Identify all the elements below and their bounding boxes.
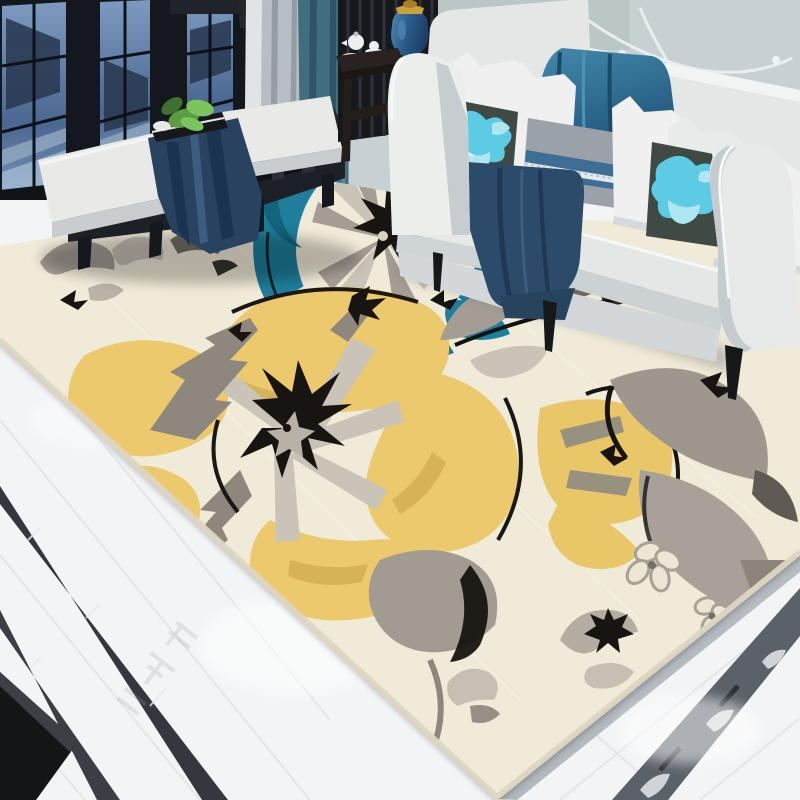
sofa-right-arm: [709, 142, 800, 352]
living-room-photo: [0, 0, 800, 800]
jar-gold-knob: [403, 0, 417, 8]
rolled-scroll: [153, 121, 171, 131]
sofa-left-arm: [388, 53, 470, 235]
scene-canvas: [0, 0, 800, 800]
